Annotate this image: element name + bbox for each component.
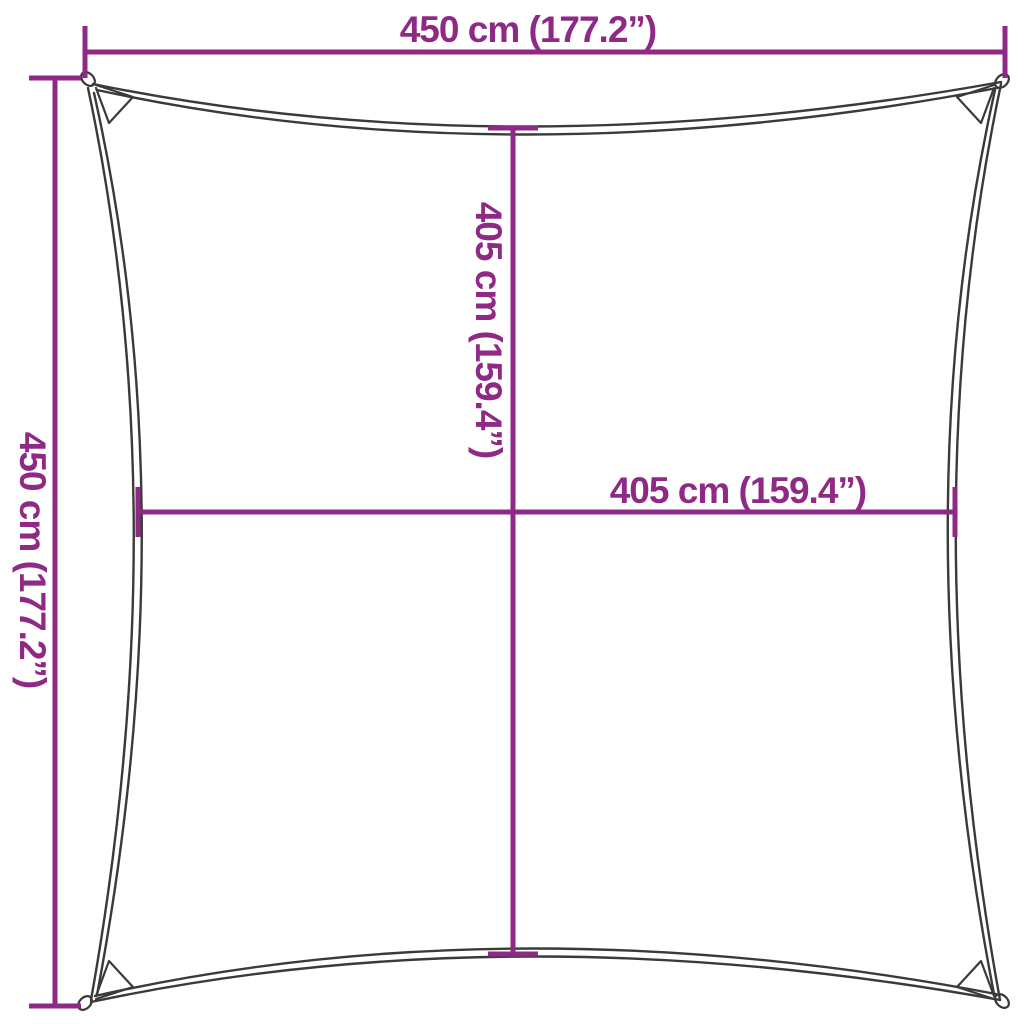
diagram-svg: 450 cm (177.2”) 450 cm (177.2”) 405 cm (…	[0, 0, 1024, 1024]
sail-edge-right-outer	[956, 84, 1001, 1000]
dimension-label-inner-vertical: 405 cm (159.4”)	[468, 202, 509, 459]
sail-corner-details	[75, 69, 1011, 1012]
shade-sail-dimension-diagram: 450 cm (177.2”) 450 cm (177.2”) 405 cm (…	[0, 0, 1024, 1024]
sail-edge-top-outer	[93, 82, 1001, 127]
corner-bottom-left	[75, 961, 133, 1013]
dimension-label-inner-horizontal: 405 cm (159.4”)	[610, 470, 867, 511]
corner-ring-icon	[78, 69, 97, 88]
sail-outline	[88, 82, 1001, 1002]
dimension-label-left: 450 cm (177.2”)	[12, 432, 53, 689]
corner-bottom-right	[957, 961, 1012, 1011]
dimension-label-top: 450 cm (177.2”)	[400, 9, 657, 50]
sail-edge-bottom-outer	[91, 956, 1000, 1002]
sail-edge-left-outer	[88, 88, 134, 1000]
corner-top-right	[957, 71, 1012, 123]
dimension-lines	[29, 26, 1005, 1006]
